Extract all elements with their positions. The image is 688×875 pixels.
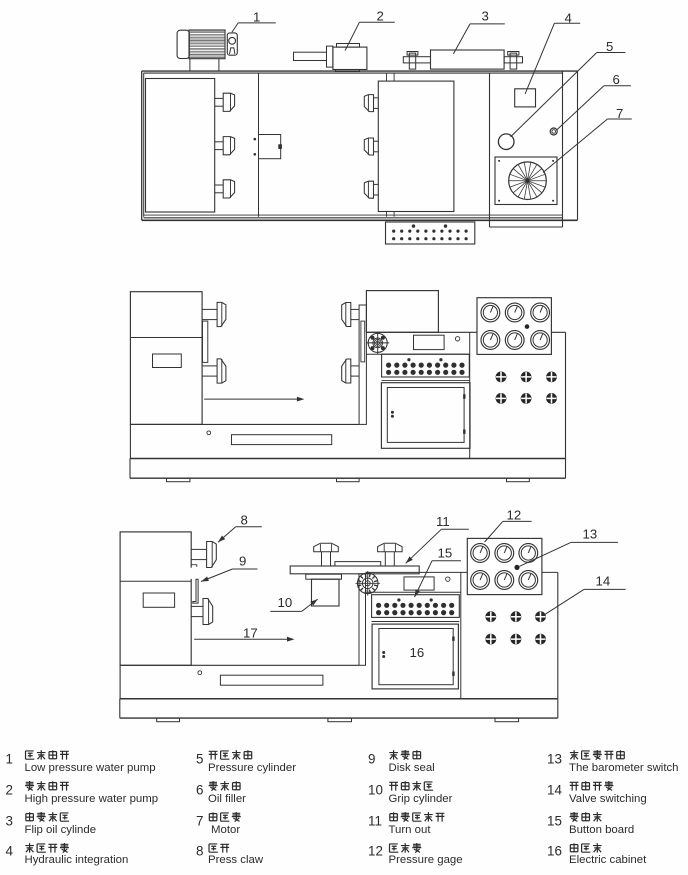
svg-text:16: 16 — [410, 645, 425, 660]
svg-text:2: 2 — [377, 9, 384, 24]
svg-text:Turn out: Turn out — [389, 824, 432, 836]
svg-text:Low pressure water pump: Low pressure water pump — [25, 762, 156, 774]
svg-text:6: 6 — [196, 782, 203, 797]
svg-text:Press claw: Press claw — [208, 854, 264, 866]
svg-text:17: 17 — [243, 626, 258, 641]
svg-text:8: 8 — [241, 513, 248, 528]
svg-text:11: 11 — [436, 514, 450, 529]
svg-text:12: 12 — [507, 508, 522, 523]
svg-text:15: 15 — [438, 546, 453, 561]
svg-text:12: 12 — [368, 843, 383, 858]
svg-text:The barometer switch: The barometer switch — [569, 762, 679, 774]
svg-text:8: 8 — [196, 843, 203, 858]
svg-text:16: 16 — [547, 843, 562, 858]
svg-text:13: 13 — [583, 527, 598, 542]
svg-text:Motor: Motor — [211, 824, 240, 836]
svg-text:10: 10 — [368, 782, 383, 797]
svg-text:Electric cabinet: Electric cabinet — [569, 854, 647, 866]
svg-text:11: 11 — [368, 813, 382, 828]
svg-text:7: 7 — [196, 813, 203, 828]
svg-text:5: 5 — [606, 39, 613, 54]
svg-text:Oil filler: Oil filler — [208, 793, 246, 805]
svg-text:3: 3 — [6, 813, 13, 828]
svg-text:10: 10 — [278, 595, 293, 610]
svg-text:Disk seal: Disk seal — [389, 762, 435, 774]
svg-text:1: 1 — [6, 751, 13, 766]
svg-text:14: 14 — [596, 574, 611, 589]
svg-text:2: 2 — [6, 782, 13, 797]
svg-text:9: 9 — [368, 751, 375, 766]
svg-text:Valve switching: Valve switching — [569, 793, 647, 805]
svg-text:Hydraulic integration: Hydraulic integration — [25, 854, 129, 866]
svg-text:High pressure water pump: High pressure water pump — [25, 793, 159, 805]
svg-text:4: 4 — [6, 843, 14, 858]
svg-text:Pressure gage: Pressure gage — [389, 854, 463, 866]
svg-text:13: 13 — [547, 751, 562, 766]
svg-text:1: 1 — [253, 10, 260, 25]
svg-text:5: 5 — [196, 751, 203, 766]
svg-text:6: 6 — [613, 72, 620, 87]
svg-text:Button board: Button board — [569, 824, 634, 836]
svg-text:3: 3 — [482, 9, 489, 24]
svg-text:Pressure cylinder: Pressure cylinder — [208, 762, 296, 774]
svg-text:Flip oil cylinde: Flip oil cylinde — [25, 824, 97, 836]
svg-text:9: 9 — [239, 554, 246, 569]
svg-text:14: 14 — [547, 782, 562, 797]
svg-text:15: 15 — [547, 813, 562, 828]
svg-text:Grip cylinder: Grip cylinder — [389, 793, 453, 805]
